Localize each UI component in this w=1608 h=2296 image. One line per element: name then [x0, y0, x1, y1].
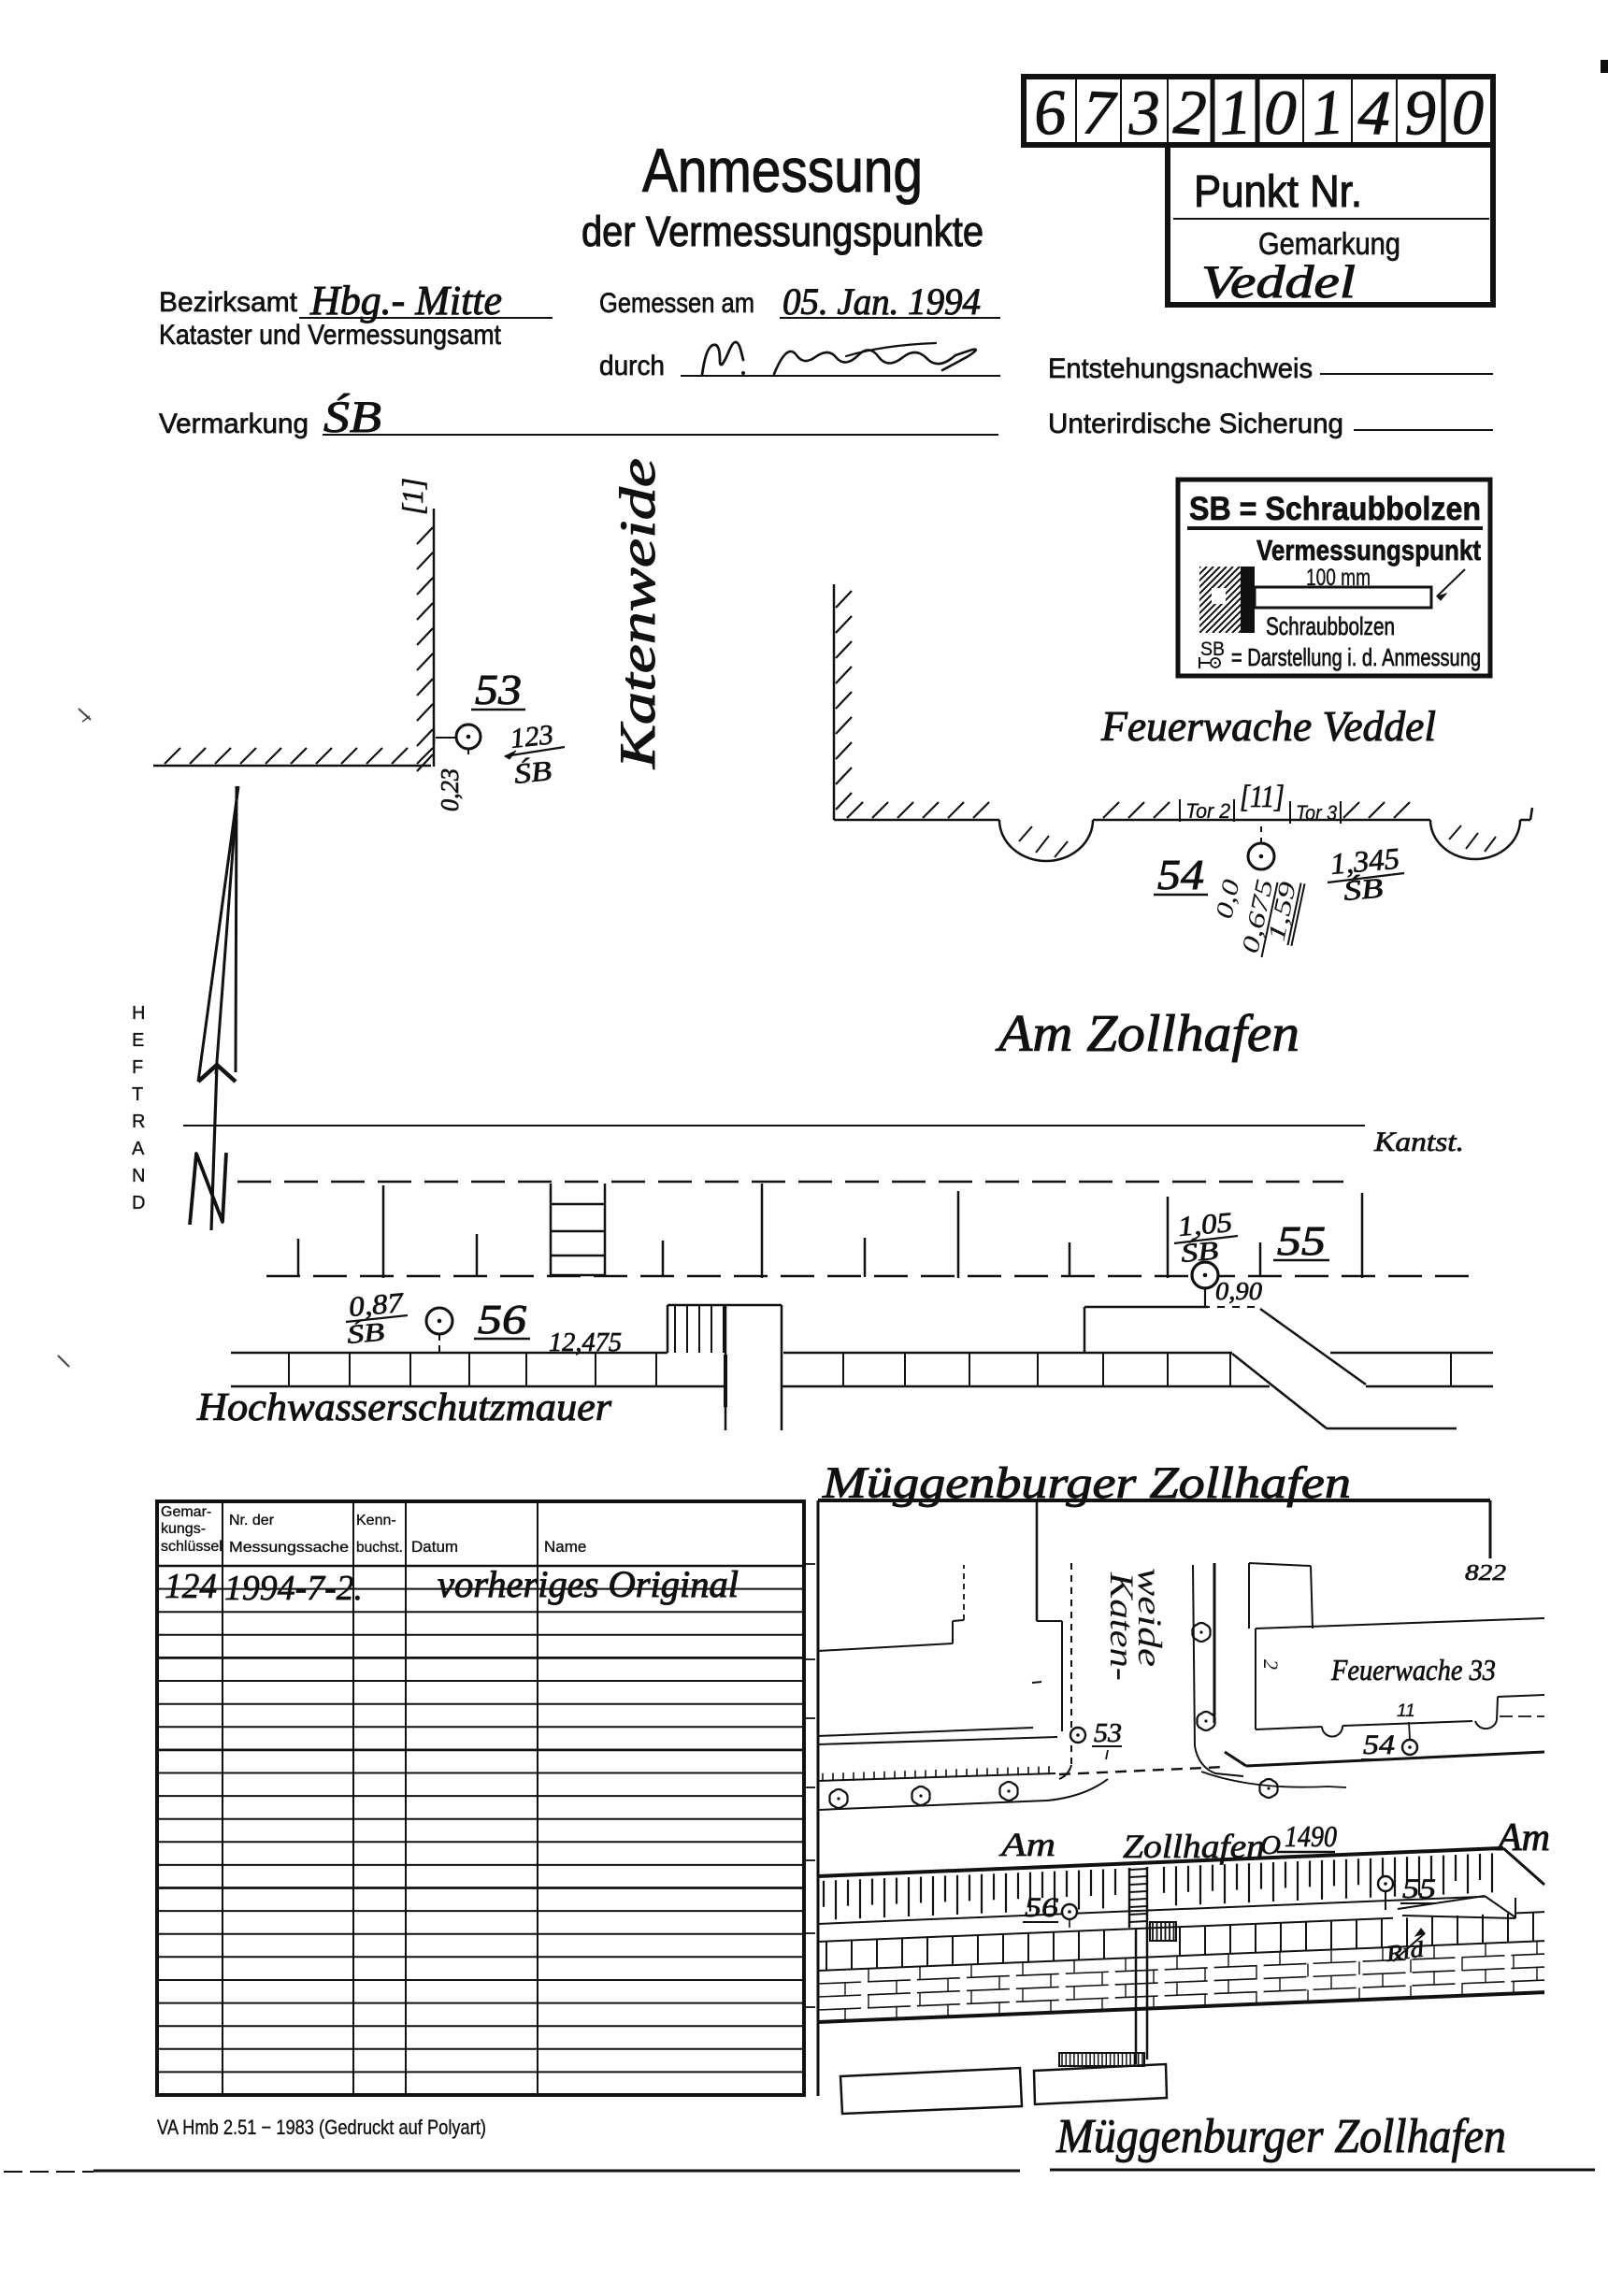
svg-text:Punkt Nr.: Punkt Nr.	[1194, 167, 1362, 217]
svg-text:ŚB: ŚB	[323, 392, 381, 442]
svg-text:1: 1	[1309, 76, 1345, 149]
svg-text:Am: Am	[1495, 1816, 1550, 1859]
svg-text:= Darstellung i. d. Anmessung: = Darstellung i. d. Anmessung	[1231, 643, 1481, 671]
svg-text:Veddel: Veddel	[1201, 255, 1356, 308]
svg-text:124: 124	[165, 1567, 217, 1606]
svg-text:56: 56	[1025, 1892, 1058, 1923]
svg-text:Name: Name	[544, 1538, 586, 1556]
svg-text:T: T	[132, 1084, 143, 1105]
svg-text:Entstehungsnachweis: Entstehungsnachweis	[1048, 353, 1313, 384]
svg-text:Feuerwache 33: Feuerwache 33	[1330, 1653, 1496, 1686]
svg-text:4: 4	[1357, 76, 1392, 149]
svg-text:N: N	[132, 1166, 145, 1186]
svg-text:R: R	[132, 1112, 145, 1132]
svg-text:12,475: 12,475	[549, 1327, 622, 1357]
svg-text:Unterirdische Sicherung: Unterirdische Sicherung	[1048, 409, 1343, 439]
svg-text:Müggenburger Zollhafen: Müggenburger Zollhafen	[1055, 2110, 1506, 2163]
svg-text:0,90: 0,90	[1215, 1277, 1263, 1305]
svg-text:Kantst.: Kantst.	[1373, 1126, 1464, 1157]
svg-text:1: 1	[1217, 76, 1253, 149]
svg-text:Tor 2: Tor 2	[1185, 799, 1230, 823]
svg-text:durch: durch	[599, 351, 665, 381]
svg-text:0: 0	[1452, 77, 1484, 148]
svg-text:schlüssel: schlüssel	[161, 1539, 223, 1555]
svg-text:VA Hmb 2.51 − 1983 (Gedruckt a: VA Hmb 2.51 − 1983 (Gedruckt auf Polyart…	[157, 2116, 486, 2139]
svg-text:0,23: 0,23	[436, 768, 464, 811]
svg-text:Katenweide: Katenweide	[610, 458, 666, 769]
svg-text:Katen-: Katen-	[1103, 1571, 1141, 1681]
svg-text:Kataster und Vermessungsamt: Kataster und Vermessungsamt	[159, 320, 502, 351]
svg-text:ŚB: ŚB	[1342, 872, 1385, 907]
svg-text:0: 0	[1263, 76, 1298, 148]
svg-text:55: 55	[1402, 1873, 1436, 1904]
svg-text:54: 54	[1157, 851, 1204, 898]
svg-text:3: 3	[1127, 76, 1162, 148]
svg-text:Anmessung: Anmessung	[642, 136, 923, 205]
svg-text:Bezirksamt: Bezirksamt	[159, 287, 298, 318]
svg-text:H: H	[132, 1003, 145, 1024]
svg-text:F: F	[132, 1057, 143, 1078]
svg-text:buchst.: buchst.	[356, 1540, 403, 1556]
svg-text:ŚB: ŚB	[512, 755, 553, 790]
svg-text:Tor 3: Tor 3	[1296, 801, 1338, 825]
svg-text:[11]: [11]	[1240, 780, 1285, 814]
svg-text:[1]: [1]	[395, 478, 429, 515]
svg-text:1490: 1490	[1285, 1819, 1337, 1853]
svg-text:Messungssache: Messungssache	[229, 1540, 349, 1556]
svg-text:Vermarkung: Vermarkung	[159, 409, 309, 439]
svg-text:822: 822	[1465, 1561, 1506, 1586]
svg-text:9: 9	[1403, 76, 1438, 148]
svg-text:11: 11	[1397, 1701, 1415, 1721]
svg-text:E: E	[132, 1030, 144, 1051]
svg-text:der Vermessungspunkte: der Vermessungspunkte	[581, 208, 983, 255]
svg-text:53: 53	[1094, 1719, 1122, 1748]
svg-text:Gemessen am: Gemessen am	[599, 288, 754, 319]
svg-text:Hbg.- Mitte: Hbg.- Mitte	[309, 278, 502, 323]
svg-text:Am: Am	[999, 1826, 1055, 1863]
svg-text:6: 6	[1031, 76, 1068, 149]
svg-text:Kenn-: Kenn-	[356, 1513, 396, 1528]
svg-text:55: 55	[1277, 1218, 1326, 1264]
svg-text:Vermessungspunkt: Vermessungspunkt	[1256, 534, 1481, 567]
svg-text:Am Zollhafen: Am Zollhafen	[995, 1005, 1299, 1063]
svg-text:Feuerwache Veddel: Feuerwache Veddel	[1100, 702, 1436, 750]
svg-text:54: 54	[1363, 1729, 1395, 1760]
svg-text:SB = Schraubbolzen: SB = Schraubbolzen	[1189, 491, 1481, 527]
svg-text:53: 53	[475, 666, 522, 713]
svg-text:Datum: Datum	[411, 1538, 458, 1556]
svg-text:vorheriges Original: vorheriges Original	[438, 1563, 739, 1605]
svg-text:kungs-: kungs-	[161, 1521, 206, 1537]
svg-text:ŚB: ŚB	[346, 1318, 386, 1350]
svg-text:A: A	[132, 1139, 145, 1159]
svg-text:56: 56	[478, 1297, 526, 1342]
svg-text:Schraubbolzen: Schraubbolzen	[1266, 612, 1395, 640]
svg-text:SB: SB	[1200, 639, 1225, 660]
svg-text:05. Jan. 1994: 05. Jan. 1994	[782, 280, 981, 323]
svg-text:1994-7-2.: 1994-7-2.	[224, 1569, 363, 1608]
svg-text:D: D	[132, 1193, 145, 1213]
svg-text:2: 2	[1259, 1659, 1283, 1670]
svg-text:Gemar-: Gemar-	[161, 1504, 211, 1520]
svg-text:Hochwasserschutzmauer: Hochwasserschutzmauer	[196, 1386, 612, 1429]
svg-text:2: 2	[1171, 76, 1208, 149]
svg-text:Nr. der: Nr. der	[229, 1513, 275, 1528]
